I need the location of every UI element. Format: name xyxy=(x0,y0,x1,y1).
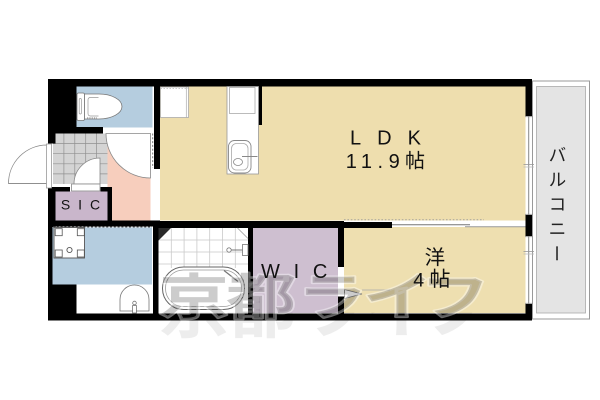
svg-text:11.9: 11.9 xyxy=(346,151,405,173)
svg-text:4: 4 xyxy=(413,270,424,292)
svg-text:SIC: SIC xyxy=(61,197,108,213)
svg-text:WIC: WIC xyxy=(261,261,341,283)
svg-text:LDK: LDK xyxy=(350,128,437,150)
